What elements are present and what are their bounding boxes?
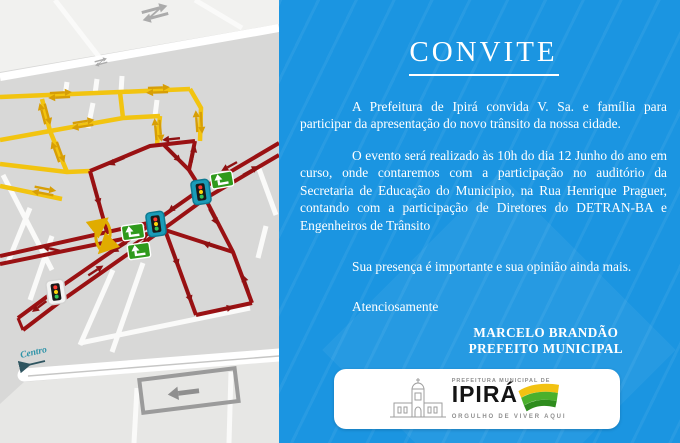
logo-slogan-text: ORGULHO DE VIVER AQUI: [452, 414, 567, 420]
signature-role: PREFEITO MUNICIPAL: [469, 341, 623, 357]
signature-block: MARCELO BRANDÃO PREFEITO MUNICIPAL: [469, 325, 623, 357]
turn-sign-icon: [127, 242, 151, 260]
invitation-flyer: Centro CONVITE A Prefeitura de Ipirá con…: [0, 0, 680, 443]
traffic-light-icon: [45, 279, 66, 305]
presence-paragraph: Sua presença é importante e sua opinião …: [300, 258, 667, 275]
church-drawing-icon: [388, 377, 448, 421]
logo-city-name: IPIRÁ: [452, 384, 518, 406]
logo-text-block: PREFEITURA MUNICIPAL DE IPIRÁ ORGULHO DE…: [452, 378, 567, 420]
title-underline: [409, 74, 559, 76]
page-title: CONVITE: [300, 36, 667, 69]
traffic-map: Centro: [0, 0, 279, 443]
traffic-light-icon: [190, 179, 211, 205]
traffic-light-icon: [145, 211, 166, 237]
signature-name: MARCELO BRANDÃO: [469, 325, 623, 341]
invitation-panel: CONVITE A Prefeitura de Ipirá convida V.…: [279, 0, 680, 443]
event-paragraph: O evento será realizado às 10h do dia 12…: [300, 147, 667, 234]
turn-sign-icon: [210, 171, 234, 190]
map-panel: Centro: [0, 0, 279, 443]
flag-icon: [516, 378, 562, 412]
turn-sign-icon: [121, 223, 145, 241]
closing-text: Atenciosamente: [300, 299, 667, 315]
intro-paragraph: A Prefeitura de Ipirá convida V. Sa. e f…: [300, 98, 667, 133]
logo-card: PREFEITURA MUNICIPAL DE IPIRÁ ORGULHO DE…: [334, 369, 620, 429]
